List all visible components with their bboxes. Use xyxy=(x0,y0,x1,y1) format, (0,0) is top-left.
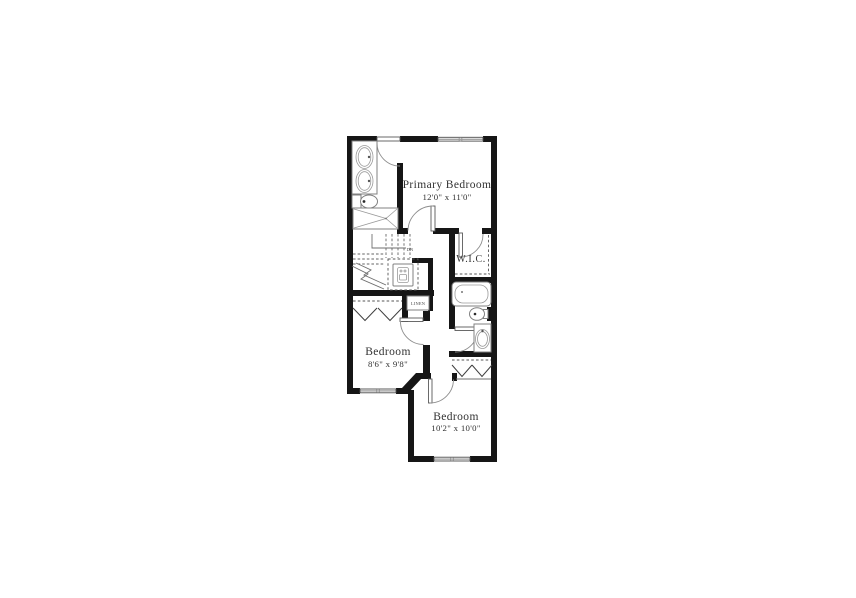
bathtub xyxy=(452,282,491,306)
linen-label: LINEN xyxy=(411,301,426,306)
primary-bedroom-door xyxy=(408,206,435,231)
stair-break-line-2 xyxy=(356,263,386,285)
stair-break-line xyxy=(352,266,384,289)
toilet xyxy=(470,307,498,321)
floor-plan-canvas: DN LINEN xyxy=(0,0,856,598)
primary-bedroom-label: Primary Bedroom xyxy=(403,179,492,191)
ensuite-fixtures xyxy=(352,141,398,229)
bathroom-vanity xyxy=(474,324,491,352)
bedroom3-dimensions: 10'2" x 10'0" xyxy=(431,423,481,433)
bedroom2-closet xyxy=(353,301,402,321)
ensuite-shower xyxy=(353,208,398,229)
bedroom2-window xyxy=(360,389,396,393)
bedroom3-label: Bedroom xyxy=(433,411,479,423)
wic-label: W.I.C. xyxy=(456,254,486,265)
primary-bedroom-dimensions: 12'0" x 11'0" xyxy=(422,192,471,202)
ensuite-door xyxy=(377,137,400,166)
linen-closet: LINEN xyxy=(407,296,429,310)
bedroom3-window xyxy=(434,457,470,461)
primary-bedroom-window xyxy=(438,137,483,141)
bedroom2-dimensions: 8'6" x 9'8" xyxy=(368,359,408,369)
bedroom2-label: Bedroom xyxy=(365,346,411,358)
stairs-dn-label: DN xyxy=(407,247,414,252)
ensuite-vanity xyxy=(352,141,377,194)
ensuite-toilet xyxy=(352,195,378,208)
bathroom-fixtures xyxy=(452,282,497,352)
bedroom3-door xyxy=(429,379,454,403)
washer-dryer-unit xyxy=(388,259,418,290)
bedroom3-closet xyxy=(452,360,492,379)
floor-plan-drawing: DN LINEN xyxy=(0,0,856,598)
